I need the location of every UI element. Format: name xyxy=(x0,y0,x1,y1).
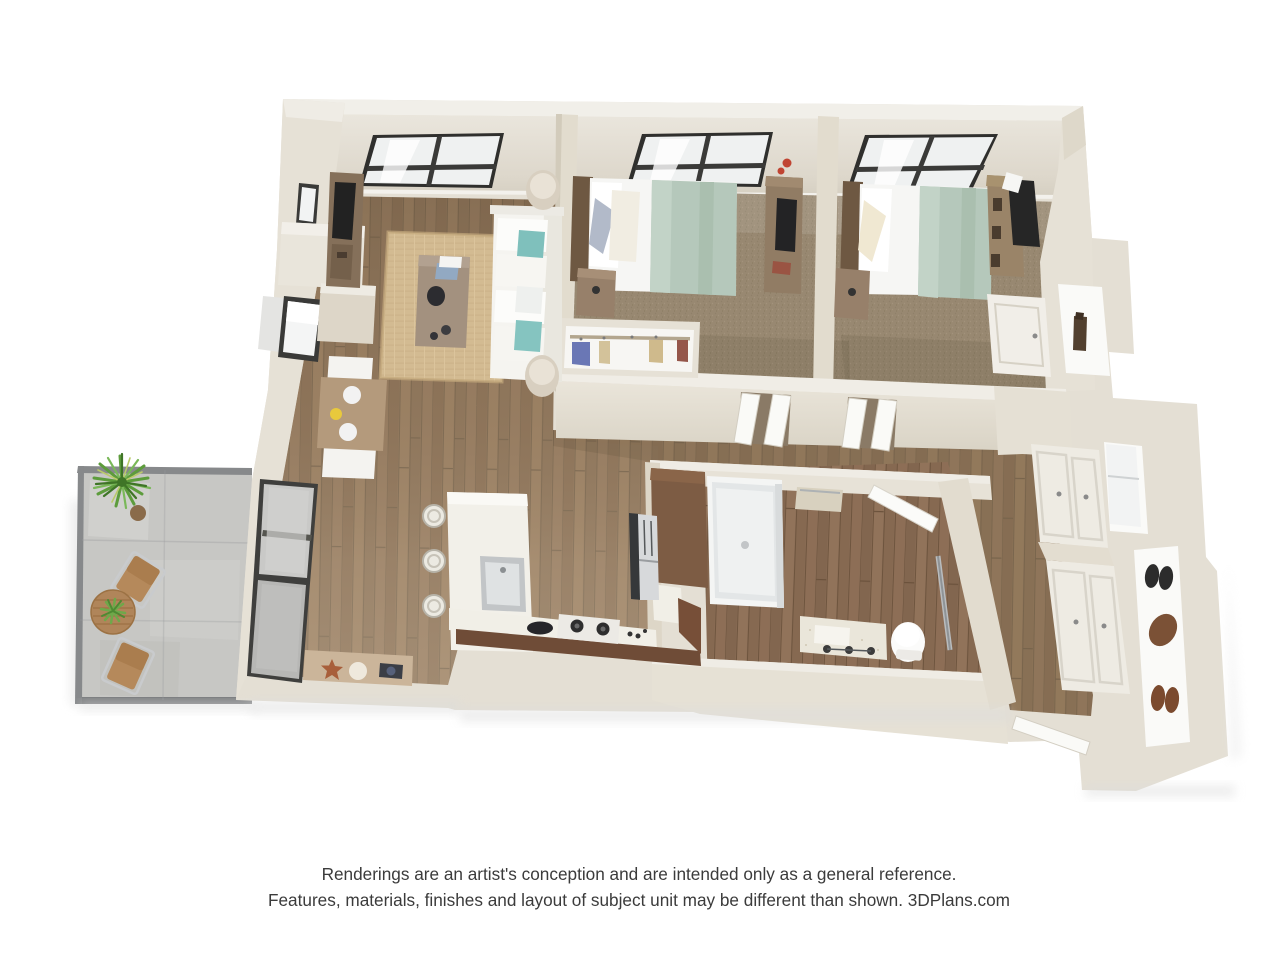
svg-text:Renderings are an artist's con: Renderings are an artist's conception an… xyxy=(322,864,957,884)
svg-text:Features, materials, finishes: Features, materials, finishes and layout… xyxy=(268,890,1010,910)
